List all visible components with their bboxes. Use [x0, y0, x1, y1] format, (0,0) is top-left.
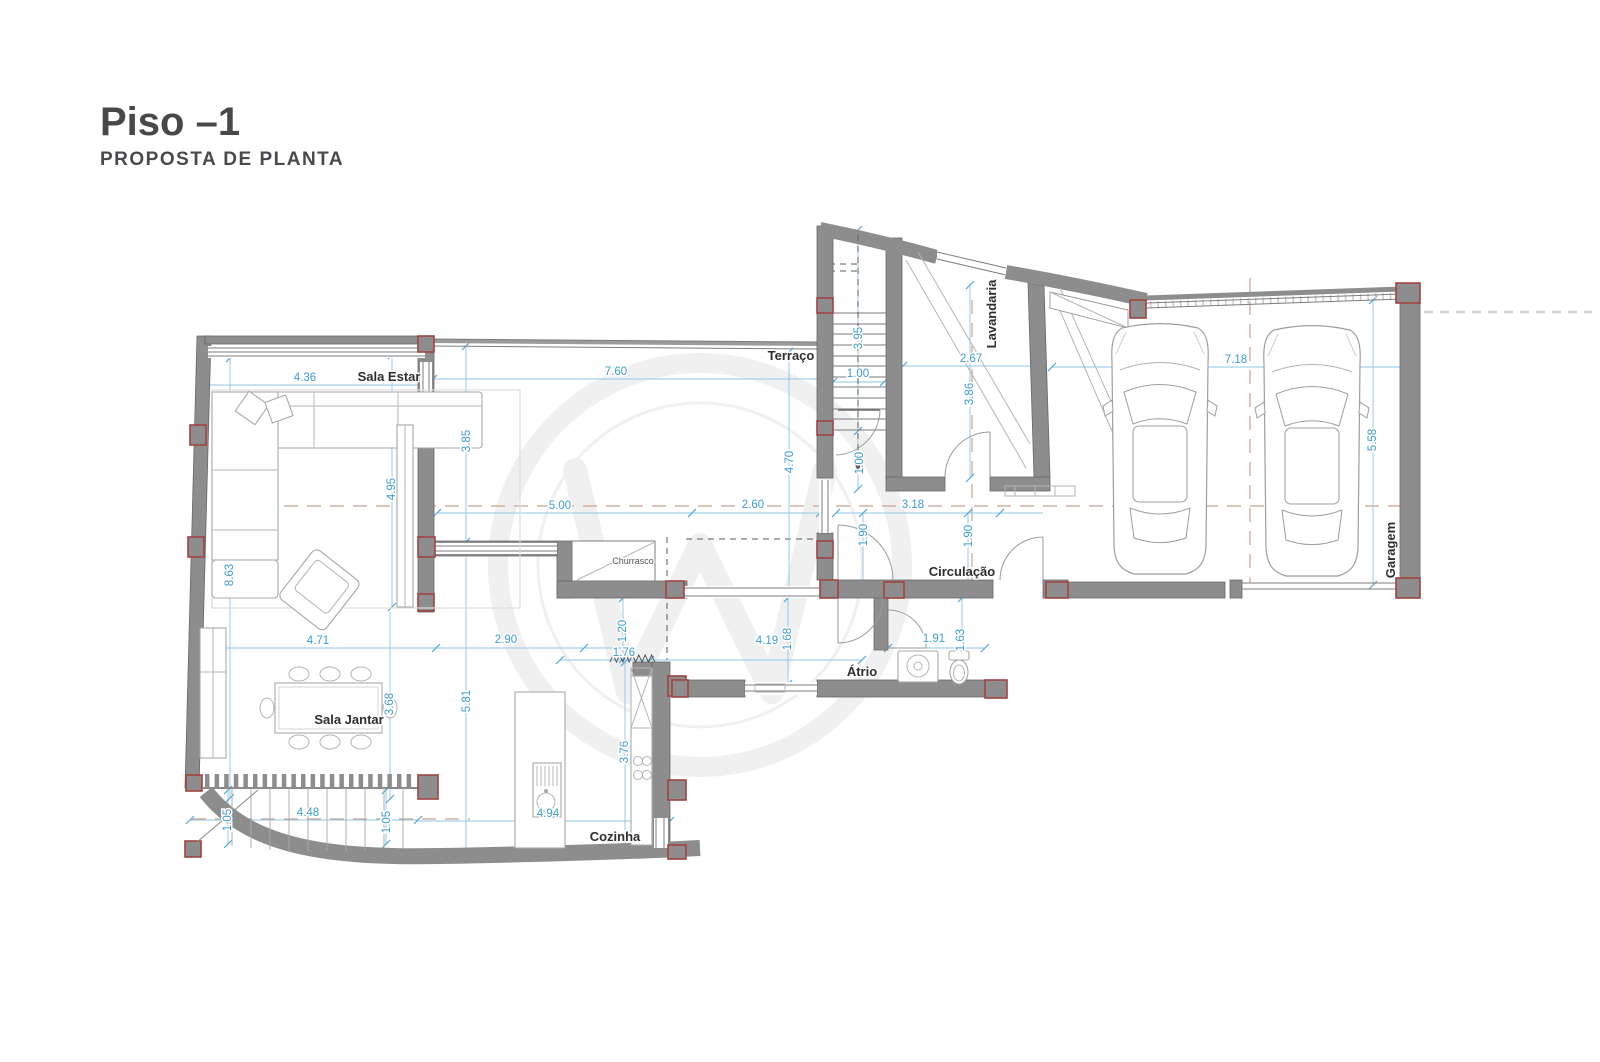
- car-1: [1103, 324, 1217, 575]
- dim-470: 4.70: [784, 451, 796, 473]
- dim-718: 7.18: [1225, 354, 1247, 366]
- room-label-circulacao: Circulação: [929, 564, 996, 579]
- car-2: [1255, 326, 1369, 577]
- dim-190a: 1.90: [858, 524, 870, 546]
- dim-395: 3.95: [853, 327, 865, 349]
- dim-436: 4.36: [294, 372, 316, 384]
- dim-120: 1.20: [617, 620, 629, 642]
- room-label-sala-jantar: Sala Jantar: [314, 712, 383, 727]
- dim-760: 7.60: [605, 366, 627, 378]
- dim-100h: 1.00: [847, 368, 869, 380]
- room-label-garagem: Garagem: [1383, 522, 1398, 578]
- dim-558: 5.58: [1367, 429, 1379, 451]
- dim-376: 3.76: [619, 741, 631, 763]
- room-label-cozinha: Cozinha: [590, 829, 641, 844]
- dim-191: 1.91: [923, 633, 945, 645]
- dim-448: 4.48: [297, 807, 319, 819]
- dim-290: 2.90: [495, 634, 517, 646]
- room-label-terraco: Terraço: [768, 348, 815, 363]
- dim-385: 3.85: [461, 430, 473, 452]
- dim-105a: 1.05: [222, 809, 234, 831]
- dim-581: 5.81: [461, 690, 473, 712]
- dim-163: 1.63: [955, 629, 967, 651]
- wc-fixtures: [898, 651, 969, 684]
- dim-176: 1.76: [613, 647, 635, 659]
- dim-267: 2.67: [960, 353, 982, 365]
- room-label-churrasco: Churrasco: [612, 556, 654, 566]
- dim-495: 4.95: [386, 478, 398, 500]
- dim-190b: 1.90: [963, 525, 975, 547]
- dining-furniture: [260, 667, 397, 749]
- floor-plan-svg: 4.36 7.60 1.00 2.67 7.18 5.00 2.60 3.18 …: [0, 0, 1600, 1062]
- dim-260: 2.60: [742, 499, 764, 511]
- dim-500: 5.00: [549, 500, 571, 512]
- dim-419: 4.19: [756, 635, 778, 647]
- page: Piso –1 PROPOSTA DE PLANTA: [0, 0, 1600, 1062]
- dim-318: 3.18: [902, 499, 924, 511]
- dim-368: 3.68: [384, 693, 396, 715]
- room-label-lavandaria: Lavandaria: [984, 279, 999, 348]
- dim-105b: 1.05: [381, 811, 393, 833]
- room-label-atrio: Átrio: [847, 664, 877, 679]
- dim-471: 4.71: [307, 635, 329, 647]
- dim-386: 3.86: [964, 383, 976, 405]
- dim-863: 8.63: [224, 564, 236, 586]
- dim-494: 4.94: [537, 808, 560, 820]
- dim-100v: 1.00: [854, 452, 866, 474]
- dim-168: 1.68: [782, 628, 794, 650]
- room-label-sala-estar: Sala Estar: [358, 369, 421, 384]
